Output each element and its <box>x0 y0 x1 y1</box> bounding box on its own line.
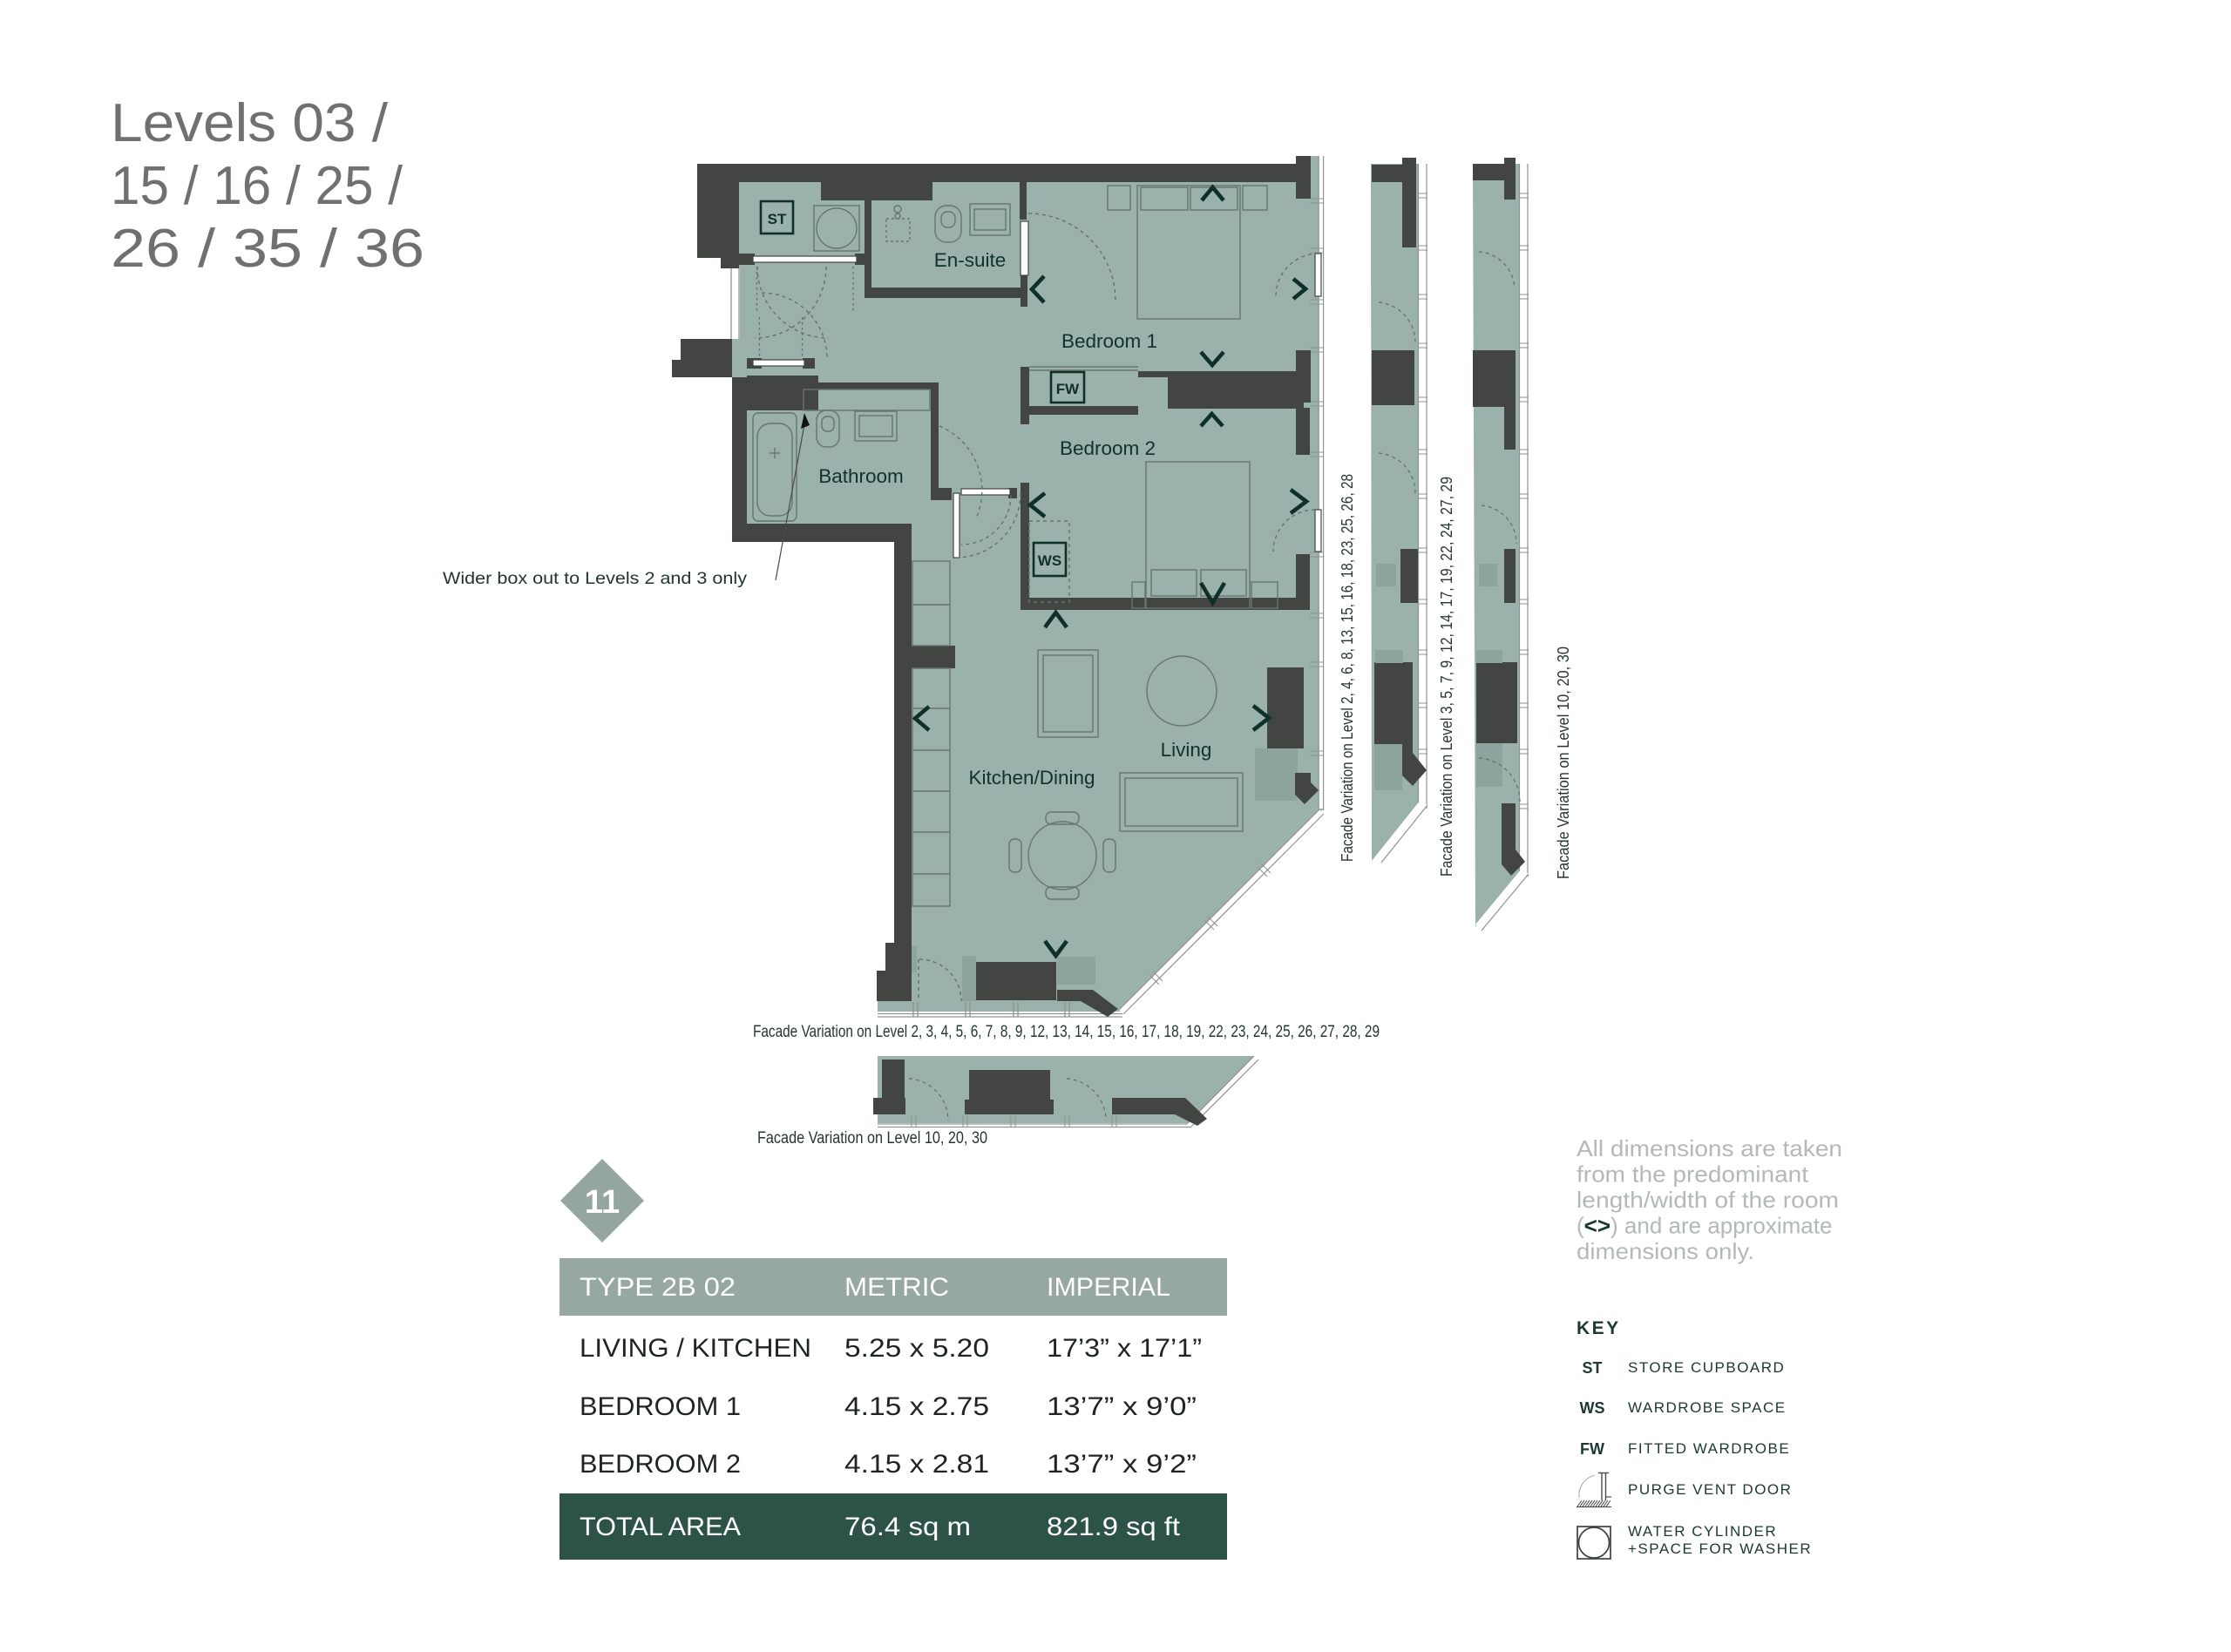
svg-text:length/width of the room: length/width of the room <box>1577 1187 1839 1213</box>
svg-text:17’3” x 17’1”: 17’3” x 17’1” <box>1047 1334 1202 1363</box>
svg-text:Bathroom: Bathroom <box>818 465 904 487</box>
svg-text:WARDROBE SPACE: WARDROBE SPACE <box>1628 1399 1787 1416</box>
svg-text:LIVING / KITCHEN: LIVING / KITCHEN <box>580 1334 811 1363</box>
svg-text:5.25 x 5.20: 5.25 x 5.20 <box>844 1334 989 1363</box>
svg-text:FW: FW <box>1580 1440 1604 1458</box>
svg-text:821.9 sq ft: 821.9 sq ft <box>1047 1513 1180 1541</box>
svg-text:Bedroom 2: Bedroom 2 <box>1060 437 1156 459</box>
svg-text:dimensions only.: dimensions only. <box>1577 1238 1754 1264</box>
svg-text:STORE CUPBOARD: STORE CUPBOARD <box>1628 1359 1785 1376</box>
svg-text:WS: WS <box>1038 552 1061 569</box>
svg-text:TOTAL AREA: TOTAL AREA <box>580 1513 741 1541</box>
svg-text:Levels 03 /: Levels 03 / <box>111 93 389 153</box>
svg-text:WATER CYLINDER: WATER CYLINDER <box>1628 1523 1777 1540</box>
svg-text:4.15 x 2.81: 4.15 x 2.81 <box>844 1450 989 1479</box>
svg-text:(<>) and are approximate: (<>) and are approximate <box>1577 1213 1832 1239</box>
svg-text:Kitchen/Dining: Kitchen/Dining <box>968 767 1095 789</box>
svg-text:ST: ST <box>1582 1359 1602 1377</box>
svg-text:KEY: KEY <box>1577 1318 1621 1338</box>
svg-text:BEDROOM 1: BEDROOM 1 <box>580 1392 741 1421</box>
svg-text:11: 11 <box>585 1184 620 1221</box>
svg-text:Living: Living <box>1161 739 1212 761</box>
svg-text:26 / 35 / 36: 26 / 35 / 36 <box>111 219 424 279</box>
svg-text:TYPE 2B 02: TYPE 2B 02 <box>580 1273 736 1302</box>
svg-text:FITTED WARDROBE: FITTED WARDROBE <box>1628 1440 1790 1457</box>
svg-text:4.15 x 2.75: 4.15 x 2.75 <box>844 1392 989 1421</box>
svg-text:WS: WS <box>1580 1399 1605 1417</box>
svg-text:IMPERIAL: IMPERIAL <box>1047 1273 1170 1302</box>
svg-text:PURGE VENT DOOR: PURGE VENT DOOR <box>1628 1481 1792 1498</box>
svg-text:BEDROOM 2: BEDROOM 2 <box>580 1450 741 1479</box>
svg-text:Facade Variation on Level 10,: Facade Variation on Level 10, 20, 30 <box>757 1129 987 1148</box>
svg-text:FW: FW <box>1056 381 1080 397</box>
svg-text:Facade Variation on Level 2, 4: Facade Variation on Level 2, 4, 6, 8, 13… <box>1339 474 1356 862</box>
svg-text:Facade Variation on Level 10,: Facade Variation on Level 10, 20, 30 <box>1555 647 1572 879</box>
svg-text:13’7” x 9’2”: 13’7” x 9’2” <box>1047 1450 1197 1479</box>
svg-text:76.4 sq m: 76.4 sq m <box>844 1513 971 1541</box>
svg-text:METRIC: METRIC <box>844 1273 949 1302</box>
svg-text:from the predominant: from the predominant <box>1577 1161 1809 1188</box>
svg-text:Facade Variation on Level 3, 5: Facade Variation on Level 3, 5, 7, 9, 12… <box>1438 477 1455 877</box>
svg-text:Facade Variation on Level 2, 3: Facade Variation on Level 2, 3, 4, 5, 6,… <box>753 1023 1380 1041</box>
svg-text:Wider box out to Levels 2 and: Wider box out to Levels 2 and 3 only <box>443 569 747 588</box>
svg-text:15 / 16 / 25 /: 15 / 16 / 25 / <box>111 156 403 216</box>
svg-text:ST: ST <box>768 211 787 227</box>
svg-text:+SPACE FOR WASHER: +SPACE FOR WASHER <box>1628 1540 1812 1557</box>
svg-text:All dimensions are taken: All dimensions are taken <box>1577 1135 1842 1161</box>
svg-text:Bedroom 1: Bedroom 1 <box>1061 330 1157 352</box>
svg-text:13’7” x 9’0”: 13’7” x 9’0” <box>1047 1392 1197 1421</box>
svg-text:En-suite: En-suite <box>934 249 1007 271</box>
